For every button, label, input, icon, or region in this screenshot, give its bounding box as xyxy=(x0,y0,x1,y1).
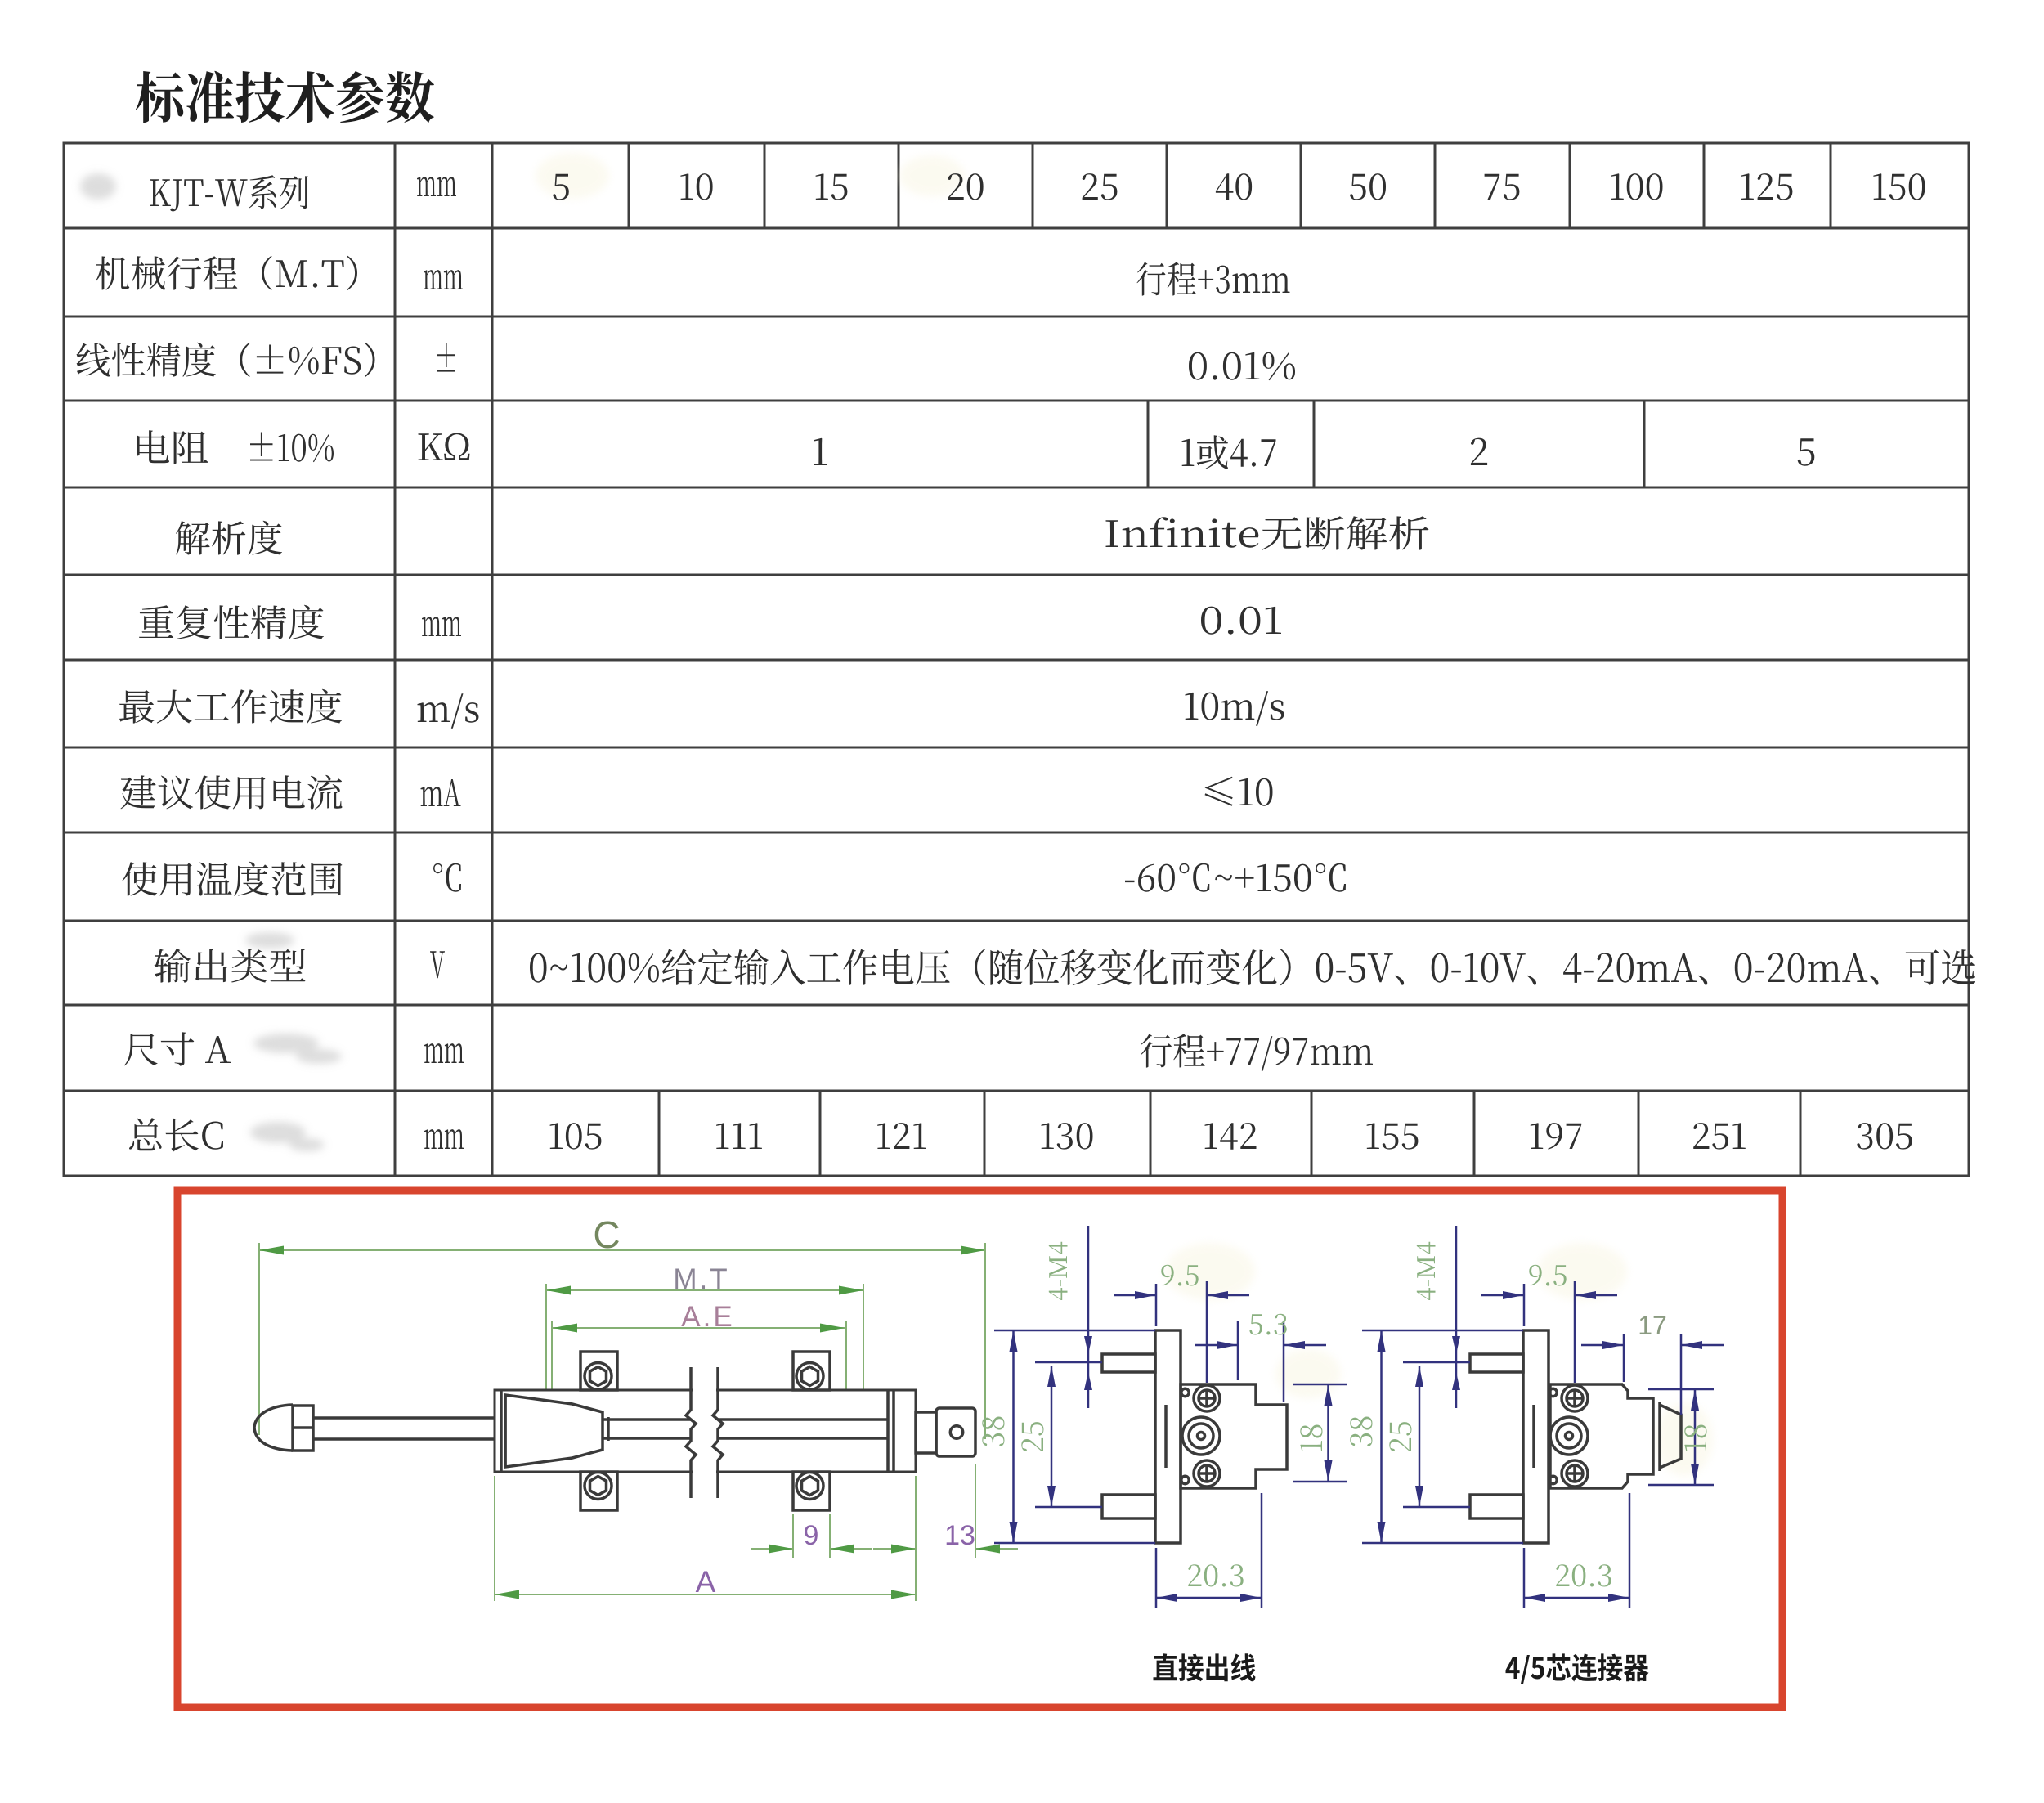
svg-text:17: 17 xyxy=(1638,1311,1667,1340)
svg-text:M.T: M.T xyxy=(673,1263,729,1295)
svg-text:A.E: A.E xyxy=(681,1301,734,1333)
svg-text:C: C xyxy=(593,1213,620,1256)
svg-text:13: 13 xyxy=(944,1520,975,1551)
svg-text:9: 9 xyxy=(804,1520,819,1551)
svg-text:A: A xyxy=(696,1565,716,1599)
